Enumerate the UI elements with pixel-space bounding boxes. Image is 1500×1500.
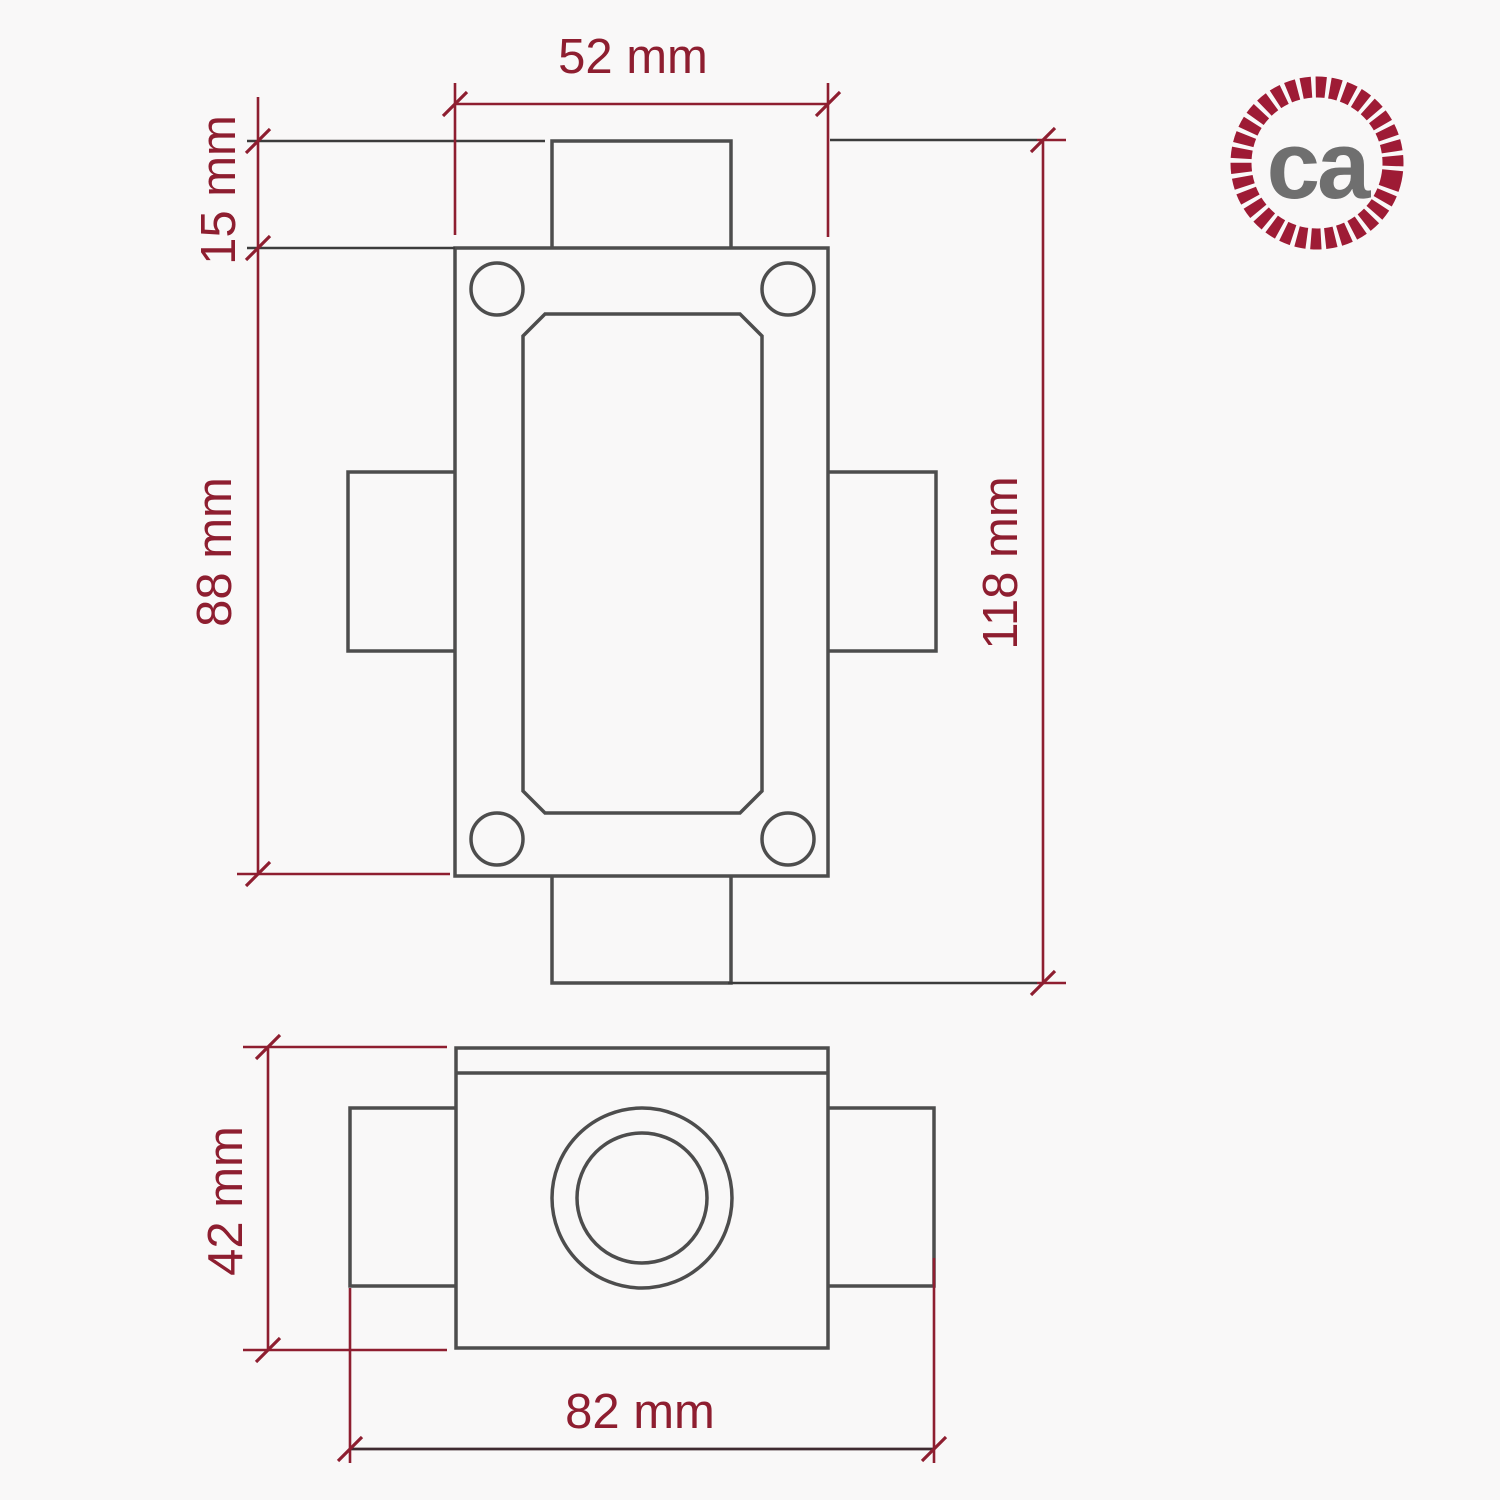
logo-text: ca	[1217, 106, 1417, 226]
top-view-body	[455, 248, 828, 876]
screw-hole-bottom-right	[762, 813, 814, 865]
screw-hole-bottom-left	[471, 813, 523, 865]
dim-label-52: 52 mm	[513, 31, 753, 83]
screw-hole-top-right	[762, 263, 814, 315]
dimension-lines	[237, 83, 1066, 1463]
side-view	[350, 1048, 934, 1348]
top-view-right-stub	[828, 472, 936, 651]
screw-hole-top-left	[471, 263, 523, 315]
dim-label-118: 118 mm	[975, 443, 1027, 683]
cable-entry-outer-circle	[552, 1108, 732, 1288]
dim-label-42: 42 mm	[200, 1081, 252, 1321]
dim-label-88: 88 mm	[189, 432, 241, 672]
top-view-inner-face	[523, 314, 762, 813]
top-view-top-stub	[552, 141, 731, 248]
brand-logo: ca	[1222, 68, 1412, 258]
dim-label-82: 82 mm	[520, 1386, 760, 1438]
top-view-left-stub	[348, 472, 455, 651]
side-view-right-stub	[828, 1108, 934, 1286]
top-view	[348, 141, 936, 983]
top-view-bottom-stub	[552, 876, 731, 983]
technical-drawing-canvas: 52 mm 15 mm 88 mm 118 mm 42 mm 82 mm ca	[0, 0, 1500, 1500]
side-view-left-stub	[350, 1108, 456, 1286]
side-view-body	[456, 1048, 828, 1348]
dim-label-15: 15 mm	[193, 70, 245, 310]
extension-lines	[247, 140, 1037, 983]
cable-entry-inner-circle	[577, 1133, 707, 1263]
